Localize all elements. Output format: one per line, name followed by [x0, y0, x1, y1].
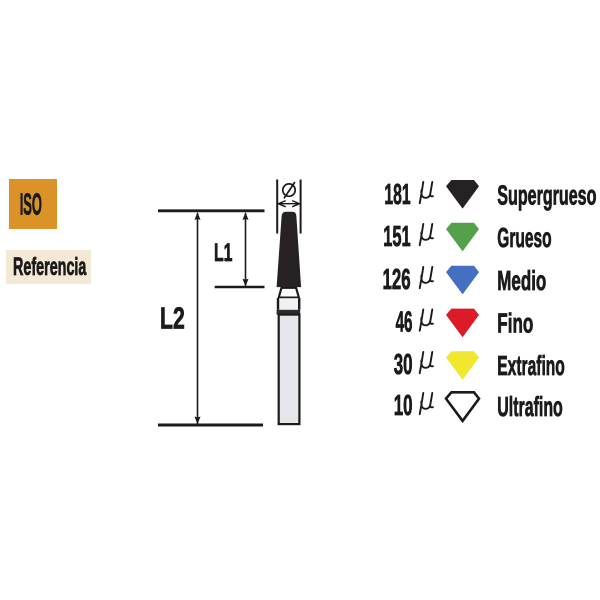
svg-text:30: 30 — [394, 349, 413, 381]
svg-text:Supergrueso: Supergrueso — [497, 180, 596, 211]
svg-text:126: 126 — [383, 264, 411, 296]
svg-text:Fino: Fino — [497, 308, 533, 339]
svg-text:Ultrafino: Ultrafino — [497, 391, 563, 422]
svg-text:181: 181 — [384, 179, 410, 211]
svg-text:L2: L2 — [160, 301, 185, 336]
svg-text:10: 10 — [394, 390, 413, 422]
svg-text:Referencia: Referencia — [13, 253, 87, 281]
svg-text:46: 46 — [396, 307, 413, 339]
svg-text:Extrafino: Extrafino — [497, 350, 565, 381]
svg-text:Grueso: Grueso — [497, 222, 551, 253]
svg-text:Medio: Medio — [497, 265, 546, 296]
svg-text:ISO: ISO — [20, 186, 42, 221]
svg-text:L1: L1 — [214, 239, 233, 267]
svg-text:151: 151 — [383, 221, 410, 253]
